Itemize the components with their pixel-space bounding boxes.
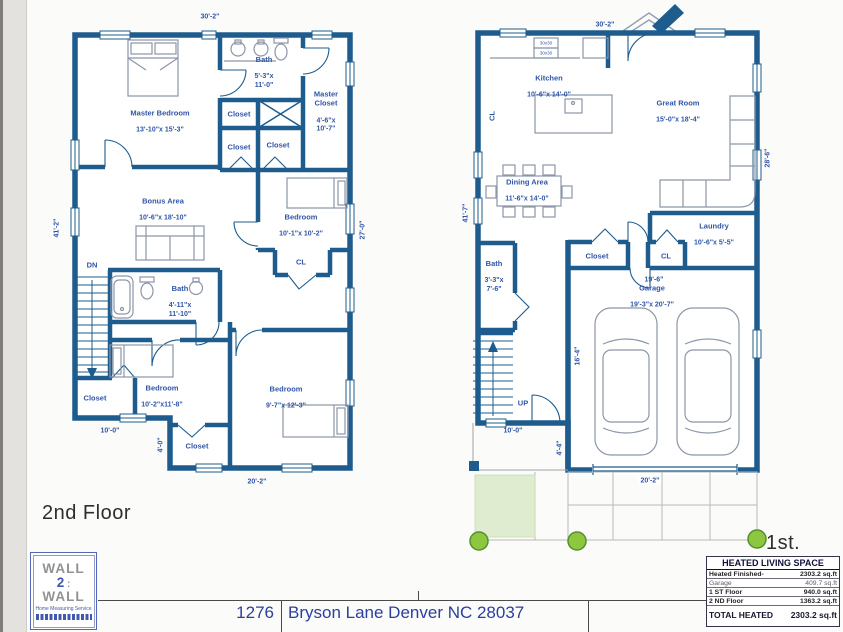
floor2-plan — [71, 31, 354, 472]
logo-word-3: WALL — [42, 590, 84, 604]
dimension-label: 30'-2" — [201, 14, 220, 21]
logo-dots: : — [64, 579, 70, 590]
floor2-title: 2nd Floor — [42, 502, 131, 525]
table-header: HEATED LIVING SPACE — [707, 557, 839, 570]
titleblock-rule — [98, 600, 706, 601]
row-value: 940.0 sq.ft — [804, 589, 837, 596]
dimension-label: 16'-4" — [575, 347, 582, 366]
row-value: 409.7 sq.ft — [805, 580, 837, 587]
address-text: Bryson Lane Denver NC 28037 — [288, 603, 524, 623]
table-row: 1 ST Floor 940.0 sq.ft — [707, 588, 839, 597]
total-label: TOTAL HEATED — [709, 610, 773, 620]
row-label: 1 ST Floor — [709, 589, 742, 596]
dimension-label: 20'-2" — [639, 478, 662, 485]
dimension-label: 30'-2" — [596, 22, 615, 29]
table-total-row: TOTAL HEATED 2303.2 sq.ft — [707, 606, 839, 620]
row-value: 2303.2 sq.ft — [800, 571, 837, 578]
row-value: 1363.2 sq.ft — [800, 598, 837, 605]
logo-word-2: 2 : — [57, 576, 71, 591]
floor1-outer-walls — [478, 33, 757, 470]
row-label: Garage — [709, 580, 732, 587]
wall2wall-logo: WALL 2 : WALL Home Measuring Service — [30, 552, 97, 630]
floorplan-linework — [0, 0, 843, 632]
titleblock-divider — [588, 600, 589, 632]
row-label: 2 ND Floor — [709, 598, 743, 605]
table-row: 2 ND Floor 1363.2 sq.ft — [707, 597, 839, 606]
dimension-label: 10'-0" — [504, 428, 523, 435]
lawn-patch — [475, 475, 535, 537]
titleblock-divider — [281, 600, 282, 632]
dimension-label: 28'-6" — [765, 149, 772, 168]
garage-door-icon — [592, 464, 738, 475]
dimension-label: 10'-0" — [101, 428, 120, 435]
dimension-label: 41'-7" — [463, 204, 470, 223]
titleblock-tick — [418, 591, 419, 600]
row-label: Heated Finished- — [709, 571, 764, 578]
dimension-label: 41'-2" — [54, 219, 61, 238]
appliance-label: 30x30 — [540, 51, 552, 56]
heated-living-space-table: HEATED LIVING SPACE Heated Finished- 230… — [706, 556, 840, 627]
dimension-label: 19'-6" — [645, 277, 664, 284]
total-value: 2303.2 sq.ft — [791, 610, 837, 620]
dimension-label: 27'-0" — [360, 221, 367, 240]
logo-tagline: Home Measuring Service — [35, 606, 91, 612]
table-row: Heated Finished- 2303.2 sq.ft — [707, 570, 839, 579]
porch-post — [469, 461, 479, 471]
floorplan-page: Master Bedroom 13'-10"x 15'-3" Bath 5'-3… — [0, 0, 843, 632]
table-row: Garage 409.7 sq.ft — [707, 579, 839, 588]
floor2-outer-walls — [75, 35, 350, 468]
logo-strip — [36, 614, 92, 620]
floor1-plan — [469, 4, 766, 550]
wall2wall-logo-inner: WALL 2 : WALL Home Measuring Service — [33, 555, 95, 628]
logo-word-1: WALL — [42, 562, 84, 576]
dimension-label: 20'-2" — [248, 479, 267, 486]
address-number: 1276 — [200, 603, 274, 623]
dimension-label: 4'-0" — [158, 437, 165, 452]
appliance-label: 30x30 — [540, 41, 552, 46]
dimension-label: 4'-4" — [557, 440, 564, 455]
